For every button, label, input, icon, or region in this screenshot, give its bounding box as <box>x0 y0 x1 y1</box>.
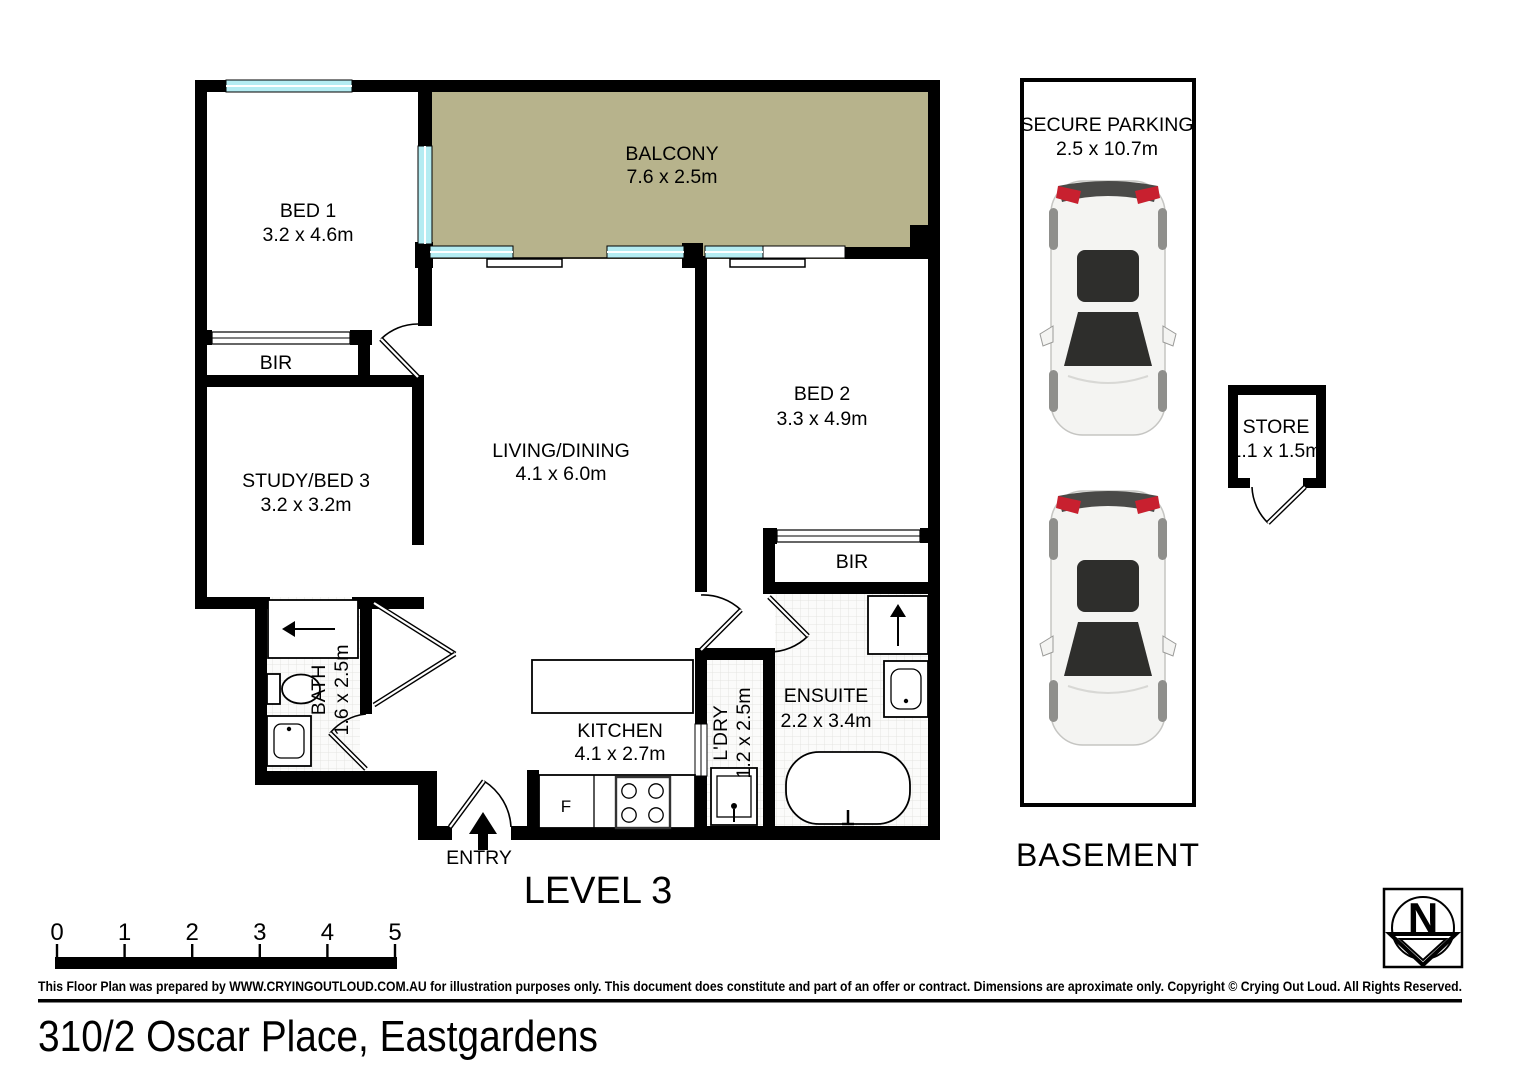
store-room: STORE 1.1 x 1.5m <box>1230 390 1321 523</box>
ldry-label: L'DRY <box>710 705 732 760</box>
scale-tick-1: 1 <box>118 919 131 946</box>
north-label: N <box>1408 894 1438 941</box>
sliding-door-leaf <box>487 259 562 267</box>
store-door-arc <box>1252 487 1268 523</box>
ensuite-label: ENSUITE <box>784 685 869 707</box>
scale-bar: 0 1 2 3 4 5 <box>50 919 401 969</box>
kitchen-dims: 4.1 x 2.7m <box>574 743 665 765</box>
bir2-label: BIR <box>836 551 869 573</box>
ensuite-basin-icon <box>884 661 928 717</box>
level-label: LEVEL 3 <box>524 870 673 912</box>
study-dims: 3.2 x 3.2m <box>260 494 351 516</box>
fridge-label: F <box>561 797 571 816</box>
footer: This Floor Plan was prepared by WWW.CRYI… <box>38 979 1462 1061</box>
disclaimer-text: This Floor Plan was prepared by WWW.CRYI… <box>38 979 1462 994</box>
kitchen-bench <box>532 660 693 713</box>
floorplan-page: BED 1 3.2 x 4.6m BALCONY 7.6 x 2.5m BED … <box>0 0 1534 1084</box>
apartment-floorplan: BED 1 3.2 x 4.6m BALCONY 7.6 x 2.5m BED … <box>195 80 940 912</box>
balcony-sliding-panel <box>763 246 845 258</box>
balcony-label: BALCONY <box>625 143 718 165</box>
bed2-label: BED 2 <box>794 383 850 405</box>
scale-tick-2: 2 <box>186 919 199 946</box>
bed2-dims: 3.3 x 4.9m <box>776 408 867 430</box>
scale-tick-0: 0 <box>50 919 63 946</box>
living-dims: 4.1 x 6.0m <box>515 463 606 485</box>
scale-tick-3: 3 <box>253 919 266 946</box>
ensuite-shower-icon <box>868 596 928 654</box>
stove-icon <box>616 777 670 828</box>
study-label: STUDY/BED 3 <box>242 470 370 492</box>
address-title: 310/2 Oscar Place, Eastgardens <box>38 1012 598 1061</box>
bir1-label: BIR <box>260 352 293 374</box>
bath-vanity-icon <box>267 716 311 766</box>
secure-parking-label: SECURE PARKING <box>1020 114 1193 136</box>
ensuite-dims: 2.2 x 3.4m <box>780 710 871 732</box>
entry-label: ENTRY <box>446 847 512 869</box>
bathtub-icon <box>786 752 910 824</box>
secure-parking-dims: 2.5 x 10.7m <box>1056 138 1158 160</box>
sliding-door-leaf <box>730 259 805 267</box>
bed1-dims: 3.2 x 4.6m <box>262 224 353 246</box>
car-top-view-icon <box>1040 491 1176 745</box>
car-top-view-icon <box>1040 181 1176 435</box>
bed1-label: BED 1 <box>280 200 336 222</box>
north-arrow: N <box>1384 889 1462 967</box>
basement-label: BASEMENT <box>1016 837 1200 873</box>
store-label: STORE <box>1243 416 1310 438</box>
balcony-dims: 7.6 x 2.5m <box>626 166 717 188</box>
bed1-door-arc <box>381 324 418 339</box>
basement-section: SECURE PARKING 2.5 x 10.7m BASEMENT STOR… <box>1016 80 1322 873</box>
bath-dims: 1.6 x 2.5m <box>331 644 353 735</box>
footer-divider <box>38 999 1462 1003</box>
kitchen-label: KITCHEN <box>577 720 663 742</box>
bed2-door-arc <box>701 595 741 610</box>
store-dims: 1.1 x 1.5m <box>1230 440 1321 462</box>
bath-label: BATH <box>308 665 330 716</box>
ldry-dims: 1.2 x 2.5m <box>733 687 755 778</box>
entry-arrow-icon <box>469 812 497 850</box>
scale-tick-5: 5 <box>388 919 401 946</box>
scale-tick-4: 4 <box>321 919 334 946</box>
living-label: LIVING/DINING <box>492 440 630 462</box>
